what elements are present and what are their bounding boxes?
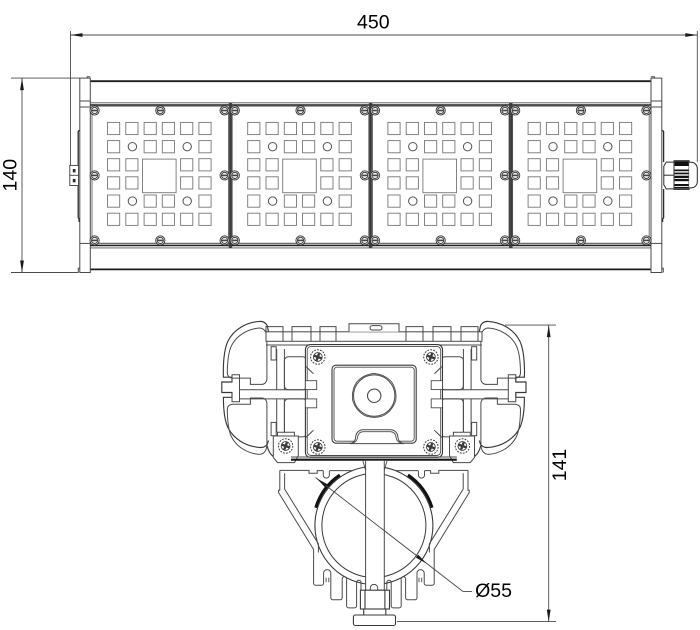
- svg-text:140: 140: [0, 159, 22, 192]
- svg-text:450: 450: [357, 12, 390, 34]
- svg-text:Ø55: Ø55: [475, 580, 512, 602]
- svg-text:141: 141: [549, 449, 571, 482]
